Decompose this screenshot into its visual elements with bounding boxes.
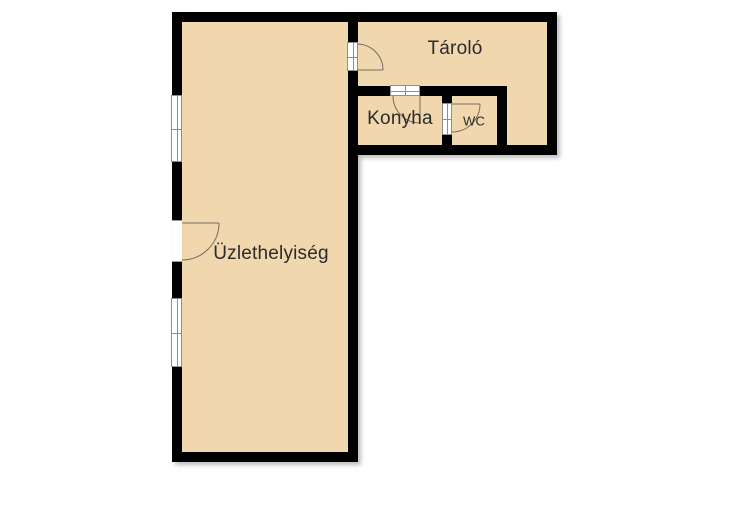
wall-bottom-right-section	[348, 145, 557, 155]
room-area-tarolo-konyha-wc	[352, 16, 552, 151]
wall-wc-right	[497, 96, 507, 145]
floorplan-page: Üzlethelyiség Tároló Konyha WC	[0, 0, 730, 516]
door-symbol-konyha	[390, 85, 420, 96]
wall-bottom-main-room	[172, 452, 358, 462]
wall-top	[172, 12, 557, 22]
window-symbol-lower	[171, 298, 182, 367]
room-label-tarolo: Tároló	[427, 38, 482, 60]
room-label-wc: WC	[463, 114, 485, 129]
wall-outer-right	[547, 12, 557, 155]
room-label-konyha: Konyha	[367, 108, 433, 130]
wall-tarolo-konyha-divider	[358, 86, 507, 96]
floorplan: Üzlethelyiség Tároló Konyha WC	[0, 0, 730, 516]
entrance-door-opening	[172, 220, 182, 262]
door-symbol-wc	[442, 103, 452, 135]
room-area-uzlethelyiseg	[176, 16, 354, 458]
room-label-uzlethelyiseg: Üzlethelyiség	[213, 243, 329, 265]
wall-main-room-right	[348, 22, 358, 452]
window-symbol-upper	[171, 95, 182, 162]
door-symbol-tarolo	[347, 42, 358, 71]
